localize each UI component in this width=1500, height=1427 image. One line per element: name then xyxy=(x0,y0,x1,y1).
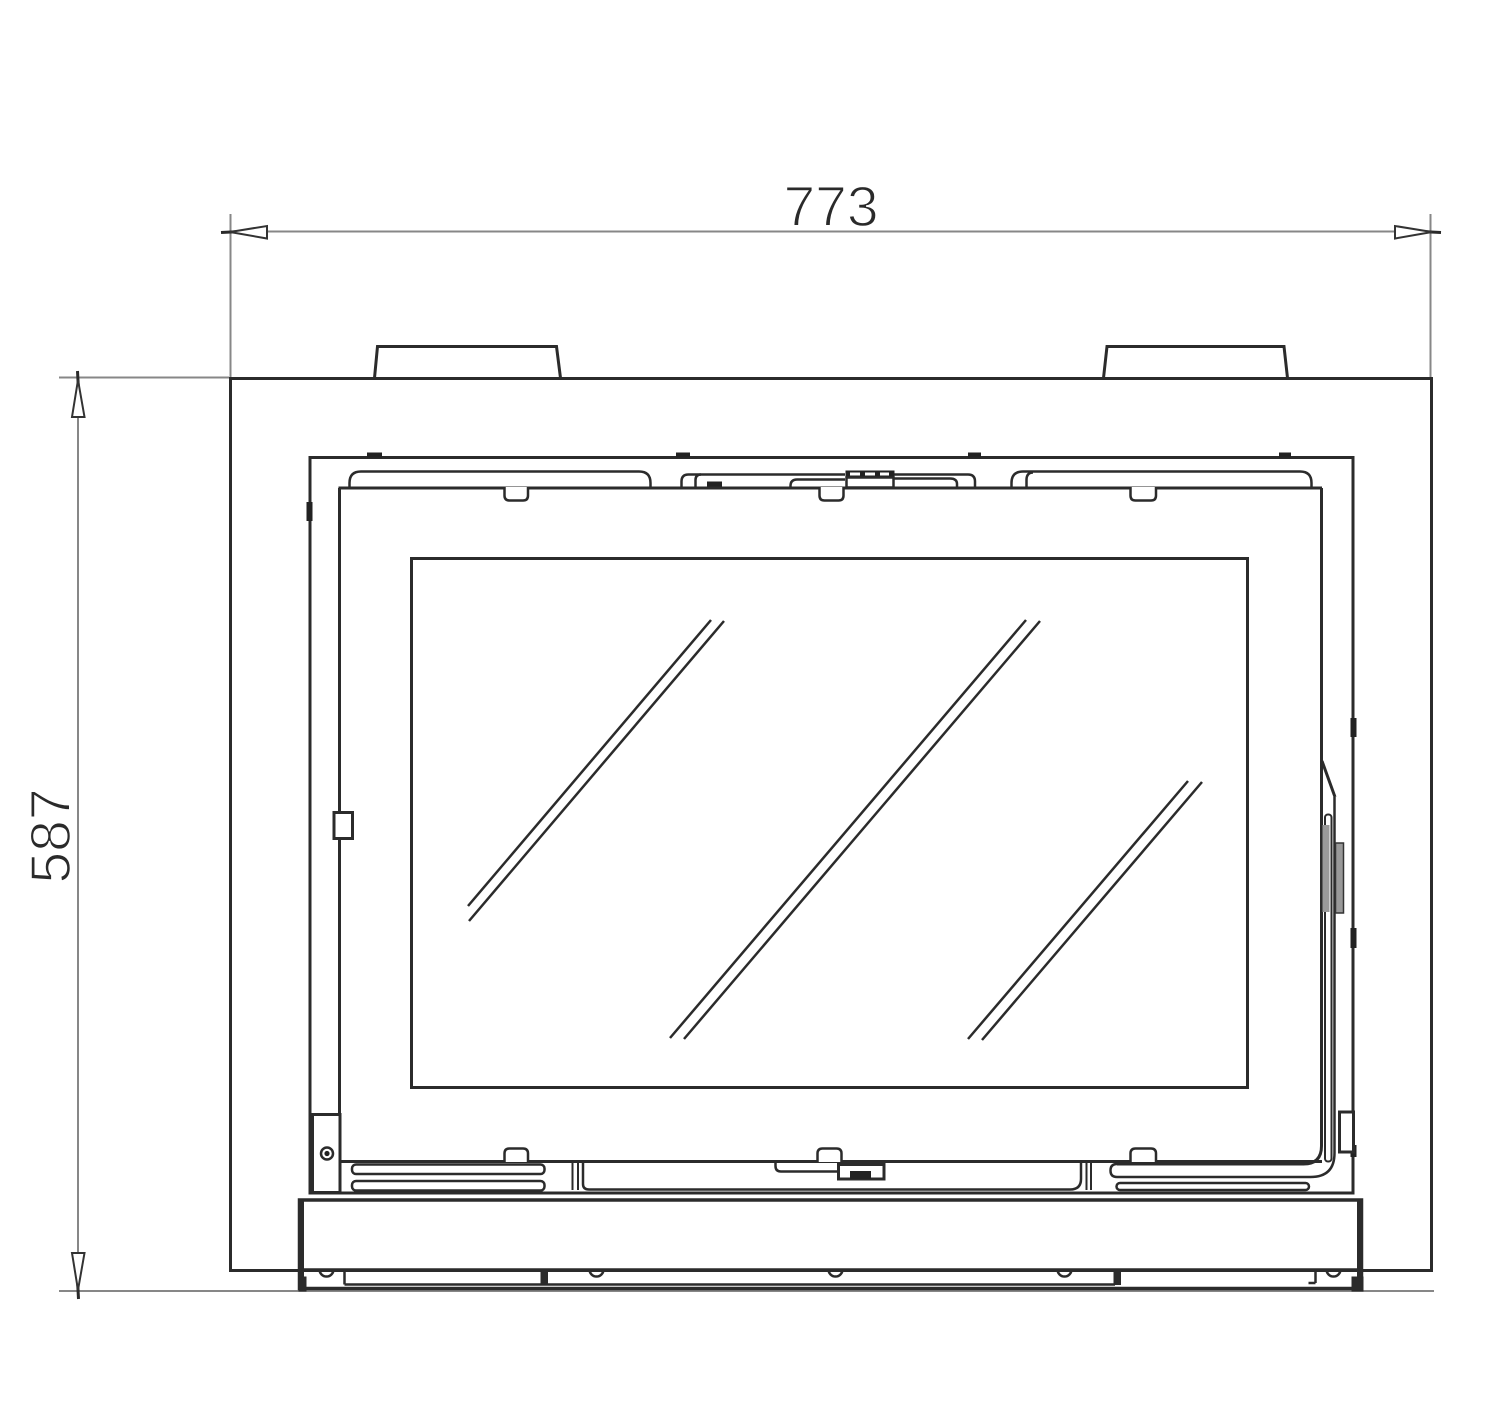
svg-text:773: 773 xyxy=(783,175,878,239)
svg-text:587: 587 xyxy=(19,788,83,883)
